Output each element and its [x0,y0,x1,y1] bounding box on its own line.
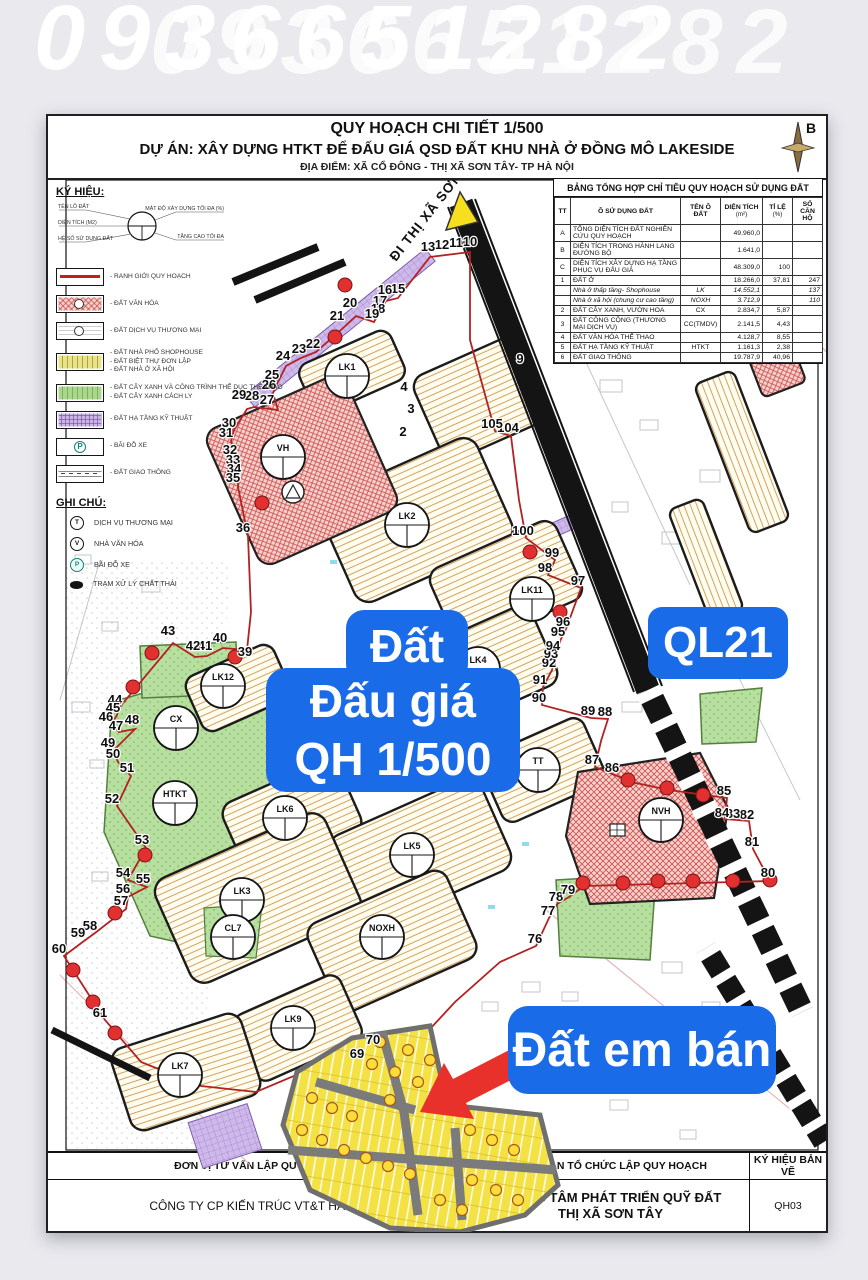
svg-text:TẦNG CAO TỐI ĐA: TẦNG CAO TỐI ĐA [177,233,224,240]
svg-text:HTKT: HTKT [163,789,187,799]
svg-text:TÊN LÔ ĐẤT: TÊN LÔ ĐẤT [58,202,90,210]
boundary-point-48: 48 [125,712,139,727]
boundary-point-77: 77 [541,903,555,918]
svg-text:LK11: LK11 [521,585,543,595]
legend-label: ĐẤT CÂY XANH VÀ CÔNG TRÌNH THỂ DỤC THỂ T… [110,384,283,393]
legend-item-boundary: RANH GIỚI QUY HOẠCH [56,268,232,286]
table-row: 2ĐẤT CÂY XANH, VƯỜN HOACX2.834,75,87 [555,306,823,316]
plot-label-NVH: NVH [639,798,683,842]
boundary-point-3: 3 [407,401,414,416]
boundary-point-78: 78 [549,889,563,904]
boundary-point-59: 59 [71,925,85,940]
boundary-point-49: 49 [101,735,115,750]
note-item: TDỊCH VỤ THƯƠNG MẠI [70,516,232,530]
boundary-point-84: 84 [715,805,730,820]
commerce-icon: T [70,516,84,530]
svg-text:LK2: LK2 [398,511,415,521]
waste-icon [70,581,83,589]
legend-label: ĐẤT NHÀ PHỐ SHOPHOUSE [110,349,203,358]
legend-item-parking: BÃI ĐỖ XE [56,438,232,456]
boundary-point-97: 97 [571,573,585,588]
drawing-code: QH03 [750,1180,826,1231]
table-row: Nhà ở xã hội (chung cư cao tầng)NOXH3.71… [555,296,823,306]
boundary-point-15: 15 [391,281,405,296]
svg-text:TT: TT [533,756,544,766]
boundary-point-20: 20 [343,295,357,310]
svg-text:LK1: LK1 [338,362,355,372]
terrain-stipple [66,560,230,1148]
note-label: BÃI ĐỖ XE [94,560,130,569]
consultant-name: CÔNG TY CP KIẾN TRÚC VT&T HÀ NỘI [48,1180,472,1231]
plot-label-LK7: LK7 [158,1053,202,1097]
note-label: DỊCH VỤ THƯƠNG MẠI [94,518,173,527]
plot-label-LK3: LK3 [220,878,264,922]
parking-icon: P [70,558,84,572]
boundary-point-45: 45 [106,700,120,715]
svg-text:CX: CX [170,714,183,724]
boundary-point-11: 11 [449,235,463,250]
boundary-point-93: 93 [544,646,558,661]
plot-label-TT: TT [516,748,560,792]
boundary-point-54: 54 [116,865,131,880]
table-col-header: TT [555,198,571,225]
boundary-point-36: 36 [236,520,250,535]
plot-label-CL7: CL7 [211,915,255,959]
boundary-point-9: 9 [516,351,523,366]
road-direction-label: ĐI THỊ XÃ SƠN TÂY [387,178,487,264]
plot-label-LK9: LK9 [271,1006,315,1050]
legend-label: ĐẤT DỊCH VỤ THƯƠNG MẠI [110,327,201,336]
boundary-point-42: 42 [186,638,200,653]
location-line: ĐỊA ĐIỂM: XÃ CỔ ĐÔNG - THỊ XÃ SƠN TÂY- T… [48,161,826,173]
boundary-point-83: 83 [726,806,740,821]
legend-label: RANH GIỚI QUY HOẠCH [110,273,191,282]
boundary-point-98: 98 [538,560,552,575]
svg-text:VH: VH [277,443,290,453]
north-arrow-icon: B [776,118,820,176]
boundary-point-81: 81 [745,834,759,849]
legend-item-infra: ĐẤT HẠ TẦNG KỸ THUẬT [56,411,232,429]
boundary-point-91: 91 [533,672,547,687]
boundary-point-90: 90 [532,690,546,705]
svg-text:HỆ SỐ SỬ DỤNG ĐẤT: HỆ SỐ SỬ DỤNG ĐẤT [58,234,114,242]
culture-icon: V [70,537,84,551]
boundary-point-88: 88 [598,704,612,719]
land-use-table: BẢNG TỔNG HỢP CHỈ TIÊU QUY HOẠCH SỬ DỤNG… [553,178,823,364]
highway-label: QL21 [648,607,788,679]
svg-text:LK6: LK6 [276,804,293,814]
legend-label: ĐẤT NHÀ Ở XÃ HỘI [110,366,203,375]
svg-text:LK12: LK12 [212,672,234,682]
plot-label-LK2: LK2 [385,503,429,547]
boundary-point-18: 18 [371,301,385,316]
boundary-point-95: 95 [551,624,565,639]
note-label: NHÀ VĂN HÓA [94,539,144,548]
plot-label-CX: CX [154,706,198,750]
boundary-swatch-icon [56,268,104,286]
boundary-point-85: 85 [717,783,731,798]
boundary-point-22: 22 [306,336,320,351]
note-item: VNHÀ VĂN HÓA [70,537,232,551]
boundary-point-61: 61 [93,1005,107,1020]
boundary-point-58: 58 [83,918,97,933]
table-col-header: TỈ LỆ(%) [763,198,793,225]
watermark-phone-echo: 0936651282 [150,0,802,95]
boundary-point-44: 44 [108,692,123,707]
boundary-point-50: 50 [106,746,120,761]
boundary-point-51: 51 [120,760,134,775]
sheet-header: QUY HOẠCH CHI TIẾT 1/500 DỰ ÁN: XÂY DỰNG… [48,116,826,180]
project-title: DỰ ÁN: XÂY DỰNG HTKT ĐỂ ĐẤU GIÁ QSD ĐẤT … [48,141,826,158]
table-row: CDIỆN TÍCH XÂY DỰNG HẠ TẦNG PHỤC VỤ ĐẤU … [555,259,823,276]
boundary-point-21: 21 [330,308,344,323]
boundary-point-17: 17 [373,293,387,308]
table-row: 4ĐẤT VĂN HÓA THỂ THAO4.128,78,55 [555,333,823,343]
svg-text:NOXH: NOXH [369,923,395,933]
authority-name: TRUNG TÂM PHÁT TRIỂN QUỸ ĐẤT THỊ XÃ SƠN … [472,1180,750,1231]
note-item: PBÃI ĐỖ XE [70,558,232,572]
boundary-point-89: 89 [581,703,595,718]
authority-header: CƠ QUAN TỔ CHỨC LẬP QUY HOẠCH [472,1153,750,1179]
lot-symbol-diagram: TÊN LÔ ĐẤT DIỆN TÍCH (M2) HỆ SỐ SỬ DỤNG … [56,198,228,254]
svg-text:LK3: LK3 [233,886,250,896]
notes-heading: GHI CHÚ: [56,497,232,509]
legend-label: ĐẤT VĂN HÓA [110,300,159,309]
boundary-point-60: 60 [52,941,66,956]
boundary-point-86: 86 [605,760,619,775]
plot-label-LK11: LK11 [510,577,554,621]
infra-swatch-icon [56,411,104,429]
svg-text:LK4: LK4 [469,655,486,665]
note-item: TRẠM XỬ LÝ CHẤT THẢI [70,579,232,589]
table-row: 3ĐẤT CÔNG CỘNG (THƯƠNG MẠI DỊCH VỤ)CC(TM… [555,316,823,333]
auction-label-line2: Đấu giá [310,672,476,730]
plot-label-VH: VH [261,435,305,479]
svg-text:NVH: NVH [651,806,670,816]
legend-label: ĐẤT BIỆT THỰ ĐƠN LẬP [110,358,203,367]
table-row: 1ĐẤT Ở18.266,037,81247 [555,276,823,286]
table-col-header: DIỆN TÍCH(m²) [721,198,763,225]
parking-swatch-icon [56,438,104,456]
boundary-point-43: 43 [161,623,175,638]
commerce-swatch-icon [56,322,104,340]
table-row: 5ĐẤT HẠ TẦNG KỸ THUẬTHTKT1.161,32,38 [555,343,823,353]
boundary-point-25: 25 [265,367,279,382]
boundary-point-2: 2 [399,424,406,439]
plot-label-HTKT: HTKT [153,781,197,825]
boundary-point-55: 55 [136,871,150,886]
plot-label-LK1: LK1 [325,354,369,398]
legend-item-green: ĐẤT CÂY XANH VÀ CÔNG TRÌNH THỂ DỤC THỂ T… [56,384,232,402]
boundary-point-19: 19 [365,306,379,321]
svg-text:DIỆN TÍCH (M2): DIỆN TÍCH (M2) [58,218,97,226]
boundary-point-52: 52 [105,791,119,806]
plot-label-NOXH: NOXH [360,915,404,959]
boundary-point-82: 82 [740,807,754,822]
svg-text:LK9: LK9 [284,1014,301,1024]
legend-item-housing: ĐẤT NHÀ PHỐ SHOPHOUSEĐẤT BIỆT THỰ ĐƠN LẬ… [56,349,232,375]
plot-label-LK6: LK6 [263,796,307,840]
boundary-point-87: 87 [585,752,599,767]
culture-swatch-icon [56,295,104,313]
table-col-header: TÊN Ô ĐẤT [681,198,721,225]
legend-label: ĐẤT CÂY XANH CÁCH LY [110,393,283,402]
table-row: Nhà ở thấp tầng- ShophouseLK14.552,1137 [555,286,823,296]
note-label: TRẠM XỬ LÝ CHẤT THẢI [93,579,177,588]
table-row: BDIỆN TÍCH TRONG HÀNH LANG ĐƯỜNG BỘ1.641… [555,242,823,259]
boundary-point-94: 94 [546,638,561,653]
svg-text:CL7: CL7 [224,923,241,933]
screenshot-stage: 0936651282 0936651282 QUY HOẠCH CHI TIẾT… [0,0,868,1280]
table-col-header: SỐ CĂN HỘ [793,198,823,225]
boundary-point-80: 80 [761,865,775,880]
boundary-point-13: 13 [421,239,435,254]
plan-title: QUY HOẠCH CHI TIẾT 1/500 [48,120,826,138]
legend-item-traffic: ĐẤT GIAO THÔNG [56,465,232,483]
plan-sheet: QUY HOẠCH CHI TIẾT 1/500 DỰ ÁN: XÂY DỰNG… [46,114,828,1233]
boundary-point-41: 41 [198,638,212,653]
legend-label: ĐẤT HẠ TẦNG KỸ THUẬT [110,415,192,424]
boundary-point-92: 92 [542,655,556,670]
legend-item-culture: ĐẤT VĂN HÓA [56,295,232,313]
boundary-point-4: 4 [400,379,408,394]
table-row: ATỔNG DIỆN TÍCH ĐẤT NGHIÊN CỨU QUY HOẠCH… [555,225,823,242]
drawing-code-header: KÝ HIỆU BẢN VẼ [750,1153,826,1179]
boundary-point-100: 100 [512,523,534,538]
boundary-point-70: 70 [366,1032,380,1047]
boundary-point-99: 99 [545,545,559,560]
table-row: 6ĐẤT GIAO THÔNG19.787,940,96 [555,353,823,363]
svg-text:LK5: LK5 [403,841,420,851]
plot-label-LK12: LK12 [201,664,245,708]
boundary-point-39: 39 [238,644,252,659]
auction-label-line3: QH 1/500 [295,730,492,788]
green-inset [204,904,262,958]
legend-heading: KÝ HIỆU: [56,186,232,198]
svg-text:LK7: LK7 [171,1061,188,1071]
direction-arrow-icon [446,192,478,230]
boundary-point-16: 16 [378,282,392,297]
auction-label: Đấu giá QH 1/500 [266,668,520,792]
boundary-point-24: 24 [276,348,291,363]
sale-label: Đất em bán [508,1006,776,1094]
legend: KÝ HIỆU: TÊN LÔ ĐẤT DIỆN TÍCH (M2) HỆ SỐ… [56,186,232,589]
legend-item-commerce: ĐẤT DỊCH VỤ THƯƠNG MẠI [56,322,232,340]
boundary-point-12: 12 [435,237,449,252]
boundary-point-57: 57 [114,893,128,908]
consultant-header: ĐƠN VỊ TƯ VẤN LẬP QUY HOẠCH [48,1153,472,1179]
table-col-header: Ô SỬ DỤNG ĐẤT [571,198,681,225]
boundary-point-23: 23 [292,341,306,356]
svg-text:MẬT ĐỘ XÂY DỰNG TỐI ĐA (%): MẬT ĐỘ XÂY DỰNG TỐI ĐA (%) [145,205,224,212]
svg-text:B: B [806,120,816,136]
legend-label: ĐẤT GIAO THÔNG [110,469,171,478]
boundary-point-53: 53 [135,832,149,847]
legend-label: BÃI ĐỖ XE [110,442,147,451]
boundary-point-40: 40 [213,630,227,645]
boundary-point-105: 105 [481,416,503,431]
boundary-point-69: 69 [350,1046,364,1061]
boundary-point-10: 10 [463,234,477,249]
housing-swatch-icon [56,353,104,371]
title-block: ĐƠN VỊ TƯ VẤN LẬP QUY HOẠCH CƠ QUAN TỔ C… [48,1151,826,1231]
boundary-point-46: 46 [99,709,113,724]
green-swatch-icon [56,384,104,402]
boundary-point-79: 79 [561,882,575,897]
plot-label-LK5: LK5 [390,833,434,877]
table-title: BẢNG TỔNG HỢP CHỈ TIÊU QUY HOẠCH SỬ DỤNG… [554,179,822,197]
boundary-point-104: 104 [497,420,519,435]
traffic-swatch-icon [56,465,104,483]
boundary-point-76: 76 [528,931,542,946]
boundary-point-47: 47 [109,718,123,733]
boundary-point-56: 56 [116,881,130,896]
boundary-point-96: 96 [556,614,570,629]
